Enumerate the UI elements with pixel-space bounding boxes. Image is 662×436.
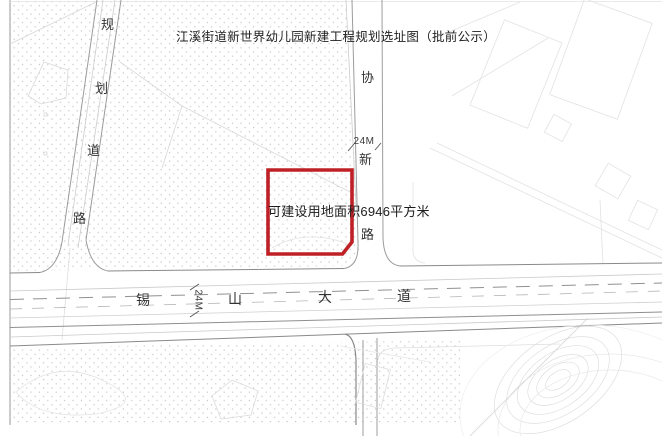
planning-map: 江溪街道新世界幼儿园新建工程规划选址图（批前公示） 规 划 道 路 协 新 路 … <box>0 0 662 436</box>
xishan-avenue-label-char-1: 锡 <box>136 293 150 307</box>
xiexin-road-label-char-1: 协 <box>361 71 374 84</box>
xishan-avenue-label-char-2: 山 <box>228 292 242 306</box>
planned-road-label-char-3: 道 <box>87 144 100 157</box>
stipple-lower-region <box>10 340 460 424</box>
xishan-avenue-lines <box>10 263 662 346</box>
xiexin-road-label-char-2: 新 <box>359 153 372 166</box>
xiexin-road-label-char-3: 路 <box>361 228 374 241</box>
map-title: 江溪街道新世界幼儿园新建工程规划选址图（批前公示） <box>176 31 496 44</box>
site-area-label: 可建设用地面积6946平方米 <box>268 205 430 218</box>
xishan-avenue-label-char-4: 道 <box>397 289 411 303</box>
planned-road-label-char-4: 路 <box>73 212 86 225</box>
planned-road-label-char-1: 规 <box>101 18 114 31</box>
planned-road-label-char-2: 划 <box>95 82 108 95</box>
xishan-avenue-label-char-3: 大 <box>318 290 332 304</box>
xishan-avenue-width-label: 24M <box>192 290 202 311</box>
xiexin-road-width-label: 24M <box>350 137 378 147</box>
